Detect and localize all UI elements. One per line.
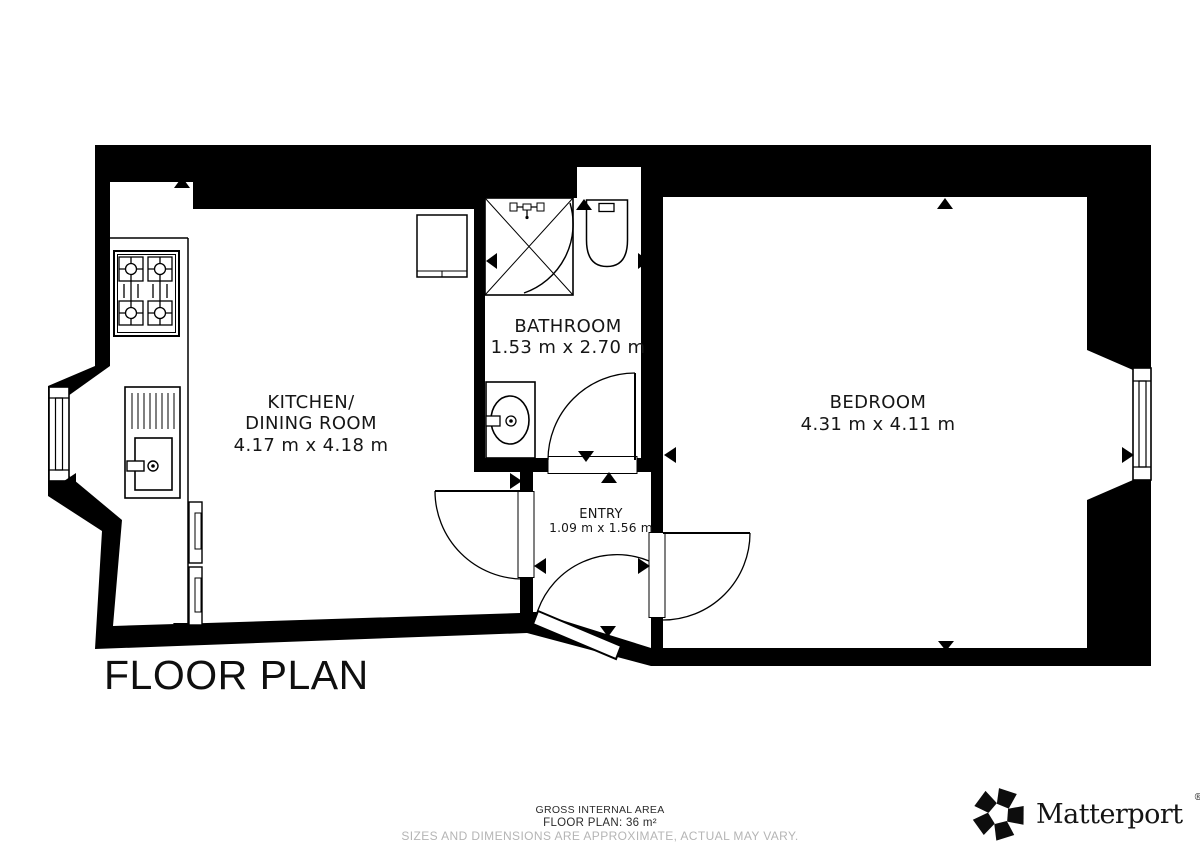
floor-plan-page: KITCHEN/ DINING ROOM 4.17 m x 4.18 m BAT… bbox=[0, 0, 1200, 849]
kitchen-door-threshold bbox=[518, 492, 534, 578]
matterport-wordmark: Matterport bbox=[1036, 799, 1183, 830]
window-right-icon bbox=[1133, 368, 1151, 480]
bedroom-dimensions: 4.31 m x 4.11 m bbox=[801, 414, 956, 435]
bathroom-dimensions: 1.53 m x 2.70 m bbox=[491, 337, 646, 358]
kitchen-label-line1: KITCHEN/ bbox=[267, 392, 355, 413]
entry-label: ENTRY bbox=[579, 507, 623, 522]
kitchen-dimensions: 4.17 m x 4.18 m bbox=[234, 435, 389, 456]
window-left-icon bbox=[49, 387, 69, 481]
kitchen-label-line2: DINING ROOM bbox=[245, 413, 377, 434]
entry-dimensions: 1.09 m x 1.56 m bbox=[549, 521, 653, 535]
page-title: FLOOR PLAN bbox=[104, 652, 369, 699]
matterport-logo: Matterport ® bbox=[972, 787, 1200, 841]
bathroom-door-threshold bbox=[548, 457, 637, 474]
bedroom-door-threshold bbox=[649, 533, 665, 618]
registered-trademark-symbol: ® bbox=[1194, 793, 1200, 803]
bathroom-label: BATHROOM bbox=[514, 316, 621, 337]
storage-unit-icon bbox=[417, 215, 467, 277]
toilet-icon bbox=[587, 200, 628, 267]
bathroom-sink-icon bbox=[486, 382, 535, 458]
matterport-pinwheel-icon bbox=[972, 787, 1026, 841]
kitchen-cabinets bbox=[189, 502, 202, 625]
bedroom-label: BEDROOM bbox=[830, 392, 927, 413]
floor-plan-drawing: KITCHEN/ DINING ROOM 4.17 m x 4.18 m BAT… bbox=[0, 0, 1200, 849]
gas-stove-icon bbox=[114, 251, 179, 336]
kitchen-sink-icon bbox=[125, 387, 180, 498]
